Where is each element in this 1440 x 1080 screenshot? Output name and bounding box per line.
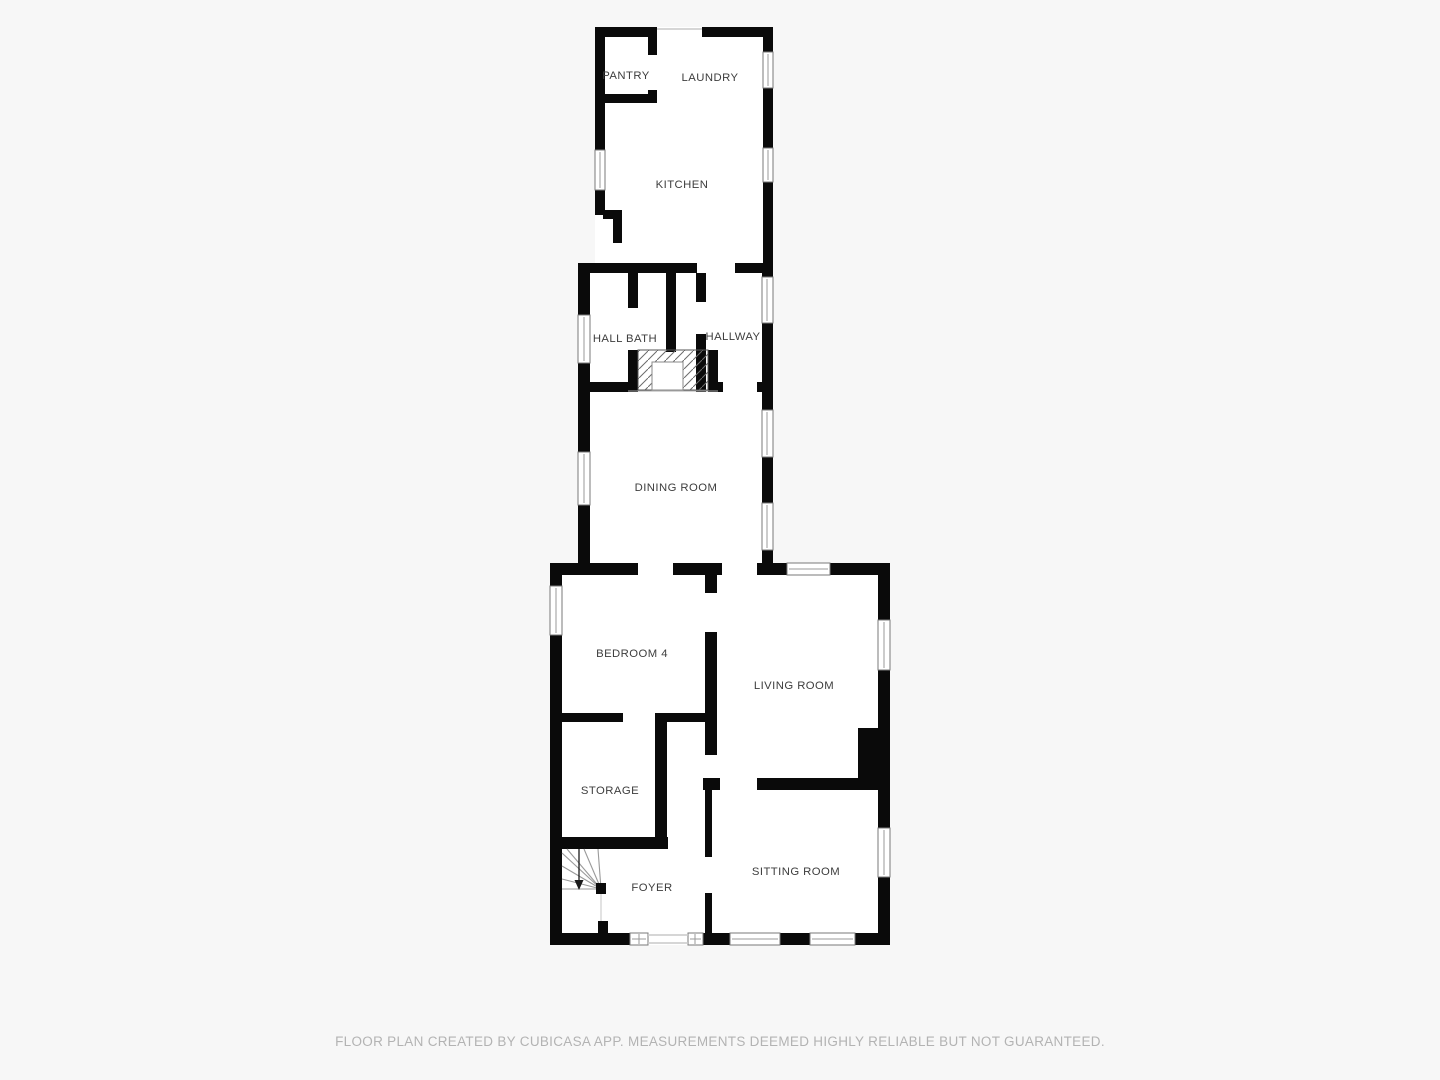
room-label-living-room: LIVING ROOM <box>754 680 834 692</box>
window-hall-bath-left <box>578 315 590 363</box>
window-bedroom4-left <box>550 586 562 635</box>
room-label-dining-room: DINING ROOM <box>635 482 718 494</box>
footer-disclaimer: FLOOR PLAN CREATED BY CUBICASA APP. MEAS… <box>0 1034 1440 1049</box>
window-laundry-right <box>763 52 773 88</box>
room-label-hallway: HALLWAY <box>705 331 760 343</box>
window-sitting-bottom-left <box>730 933 780 945</box>
window-kitchen-left <box>595 150 605 190</box>
window-foyer-bottom-left <box>630 933 648 945</box>
window-living-right <box>878 620 890 670</box>
window-sitting-right <box>878 828 890 877</box>
chimney-hatched <box>628 350 718 392</box>
window-dining-right-lower <box>762 503 773 550</box>
room-label-sitting-room: SITTING ROOM <box>752 866 840 878</box>
room-label-pantry: PANTRY <box>602 70 649 82</box>
floor-plan-page: PANTRY LAUNDRY KITCHEN HALL BATH HALLWAY… <box>0 0 1440 1080</box>
room-label-laundry: LAUNDRY <box>682 72 739 84</box>
window-hallway-right <box>762 277 773 323</box>
window-sitting-bottom-right <box>810 933 855 945</box>
window-foyer-bottom-right <box>688 933 703 945</box>
room-label-bedroom-4: BEDROOM 4 <box>596 648 668 660</box>
window-dining-right-upper <box>762 410 773 457</box>
room-label-kitchen: KITCHEN <box>656 179 709 191</box>
window-kitchen-right <box>763 148 773 182</box>
room-label-storage: STORAGE <box>581 785 639 797</box>
window-living-top <box>787 563 830 575</box>
window-dining-left <box>578 452 590 505</box>
room-label-foyer: FOYER <box>631 882 672 894</box>
fireplace <box>858 728 882 780</box>
room-label-hall-bath: HALL BATH <box>593 333 657 345</box>
floor-plan-drawing: PANTRY LAUNDRY KITCHEN HALL BATH HALLWAY… <box>0 0 1440 1080</box>
